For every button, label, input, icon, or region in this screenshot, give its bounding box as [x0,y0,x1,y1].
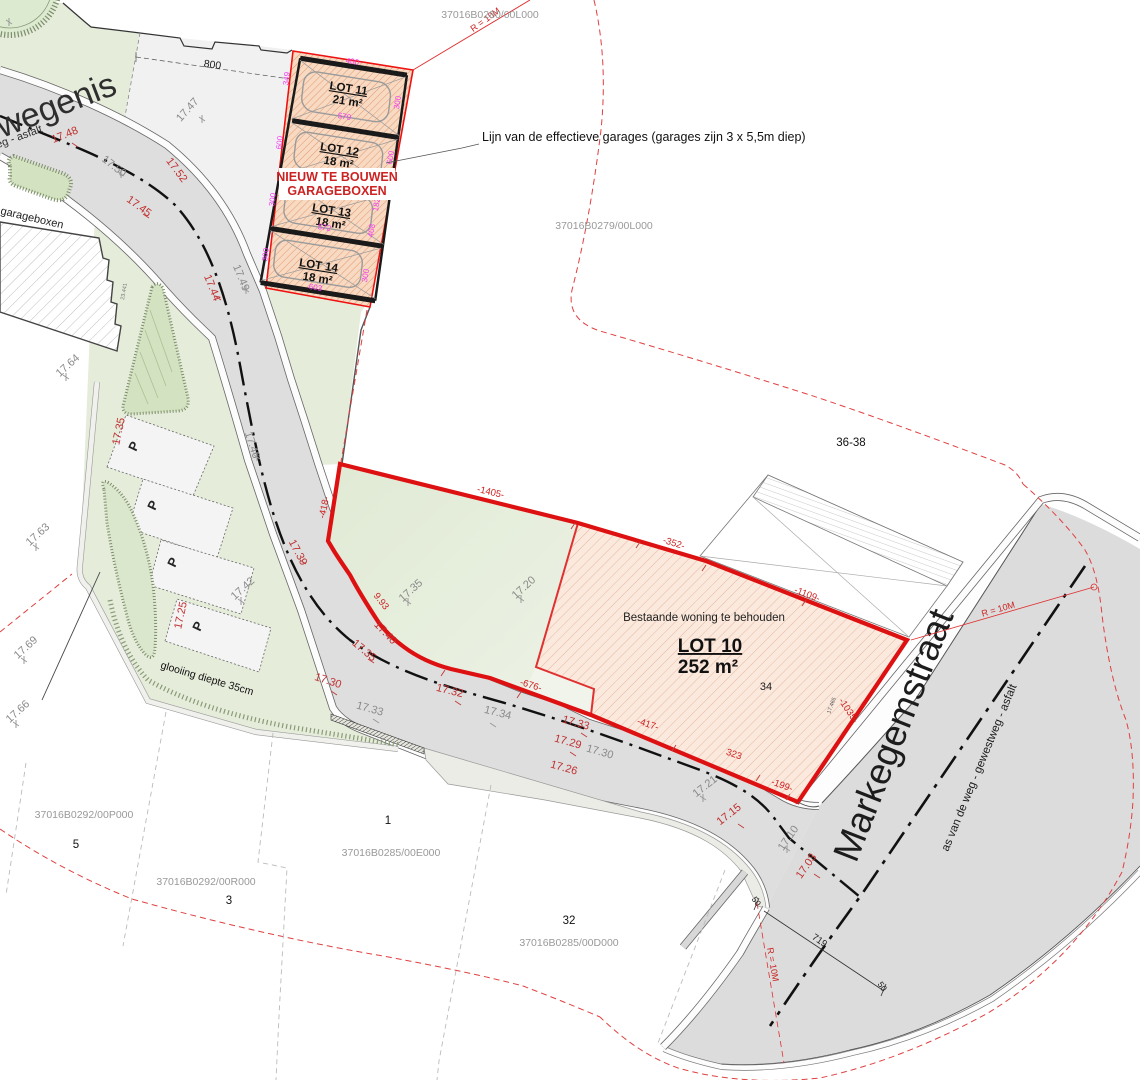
svg-text:349: 349 [281,71,292,86]
svg-text:1: 1 [385,815,391,827]
svg-text:37016B0285/00D000: 37016B0285/00D000 [519,937,618,949]
svg-text:37016B0280/00L000: 37016B0280/00L000 [441,9,539,21]
svg-text:800: 800 [203,58,222,72]
svg-text:37016B0292/00P000: 37016B0292/00P000 [35,809,134,821]
svg-text:300: 300 [260,247,271,262]
svg-text:34: 34 [760,681,772,693]
svg-text:600: 600 [274,135,285,150]
svg-text:GARAGEBOXEN: GARAGEBOXEN [287,184,386,198]
svg-text:LOT 10: LOT 10 [678,636,742,657]
svg-text:37016B0292/00R000: 37016B0292/00R000 [156,876,255,888]
svg-text:36-38: 36-38 [836,437,865,449]
svg-text:NIEUW TE BOUWEN: NIEUW TE BOUWEN [276,170,398,184]
svg-text:Lijn van de effectieve garages: Lijn van de effectieve garages (garages … [482,130,806,144]
svg-text:5: 5 [73,839,79,851]
svg-text:37016B0279/00L000: 37016B0279/00L000 [555,220,653,232]
svg-text:Bestaande woning te behouden: Bestaande woning te behouden [623,612,785,624]
svg-text:37016B0285/00E000: 37016B0285/00E000 [342,847,441,859]
svg-text:300: 300 [267,192,278,207]
svg-text:3: 3 [226,895,232,907]
svg-text:252 m²: 252 m² [678,657,738,678]
svg-text:32: 32 [563,915,576,927]
